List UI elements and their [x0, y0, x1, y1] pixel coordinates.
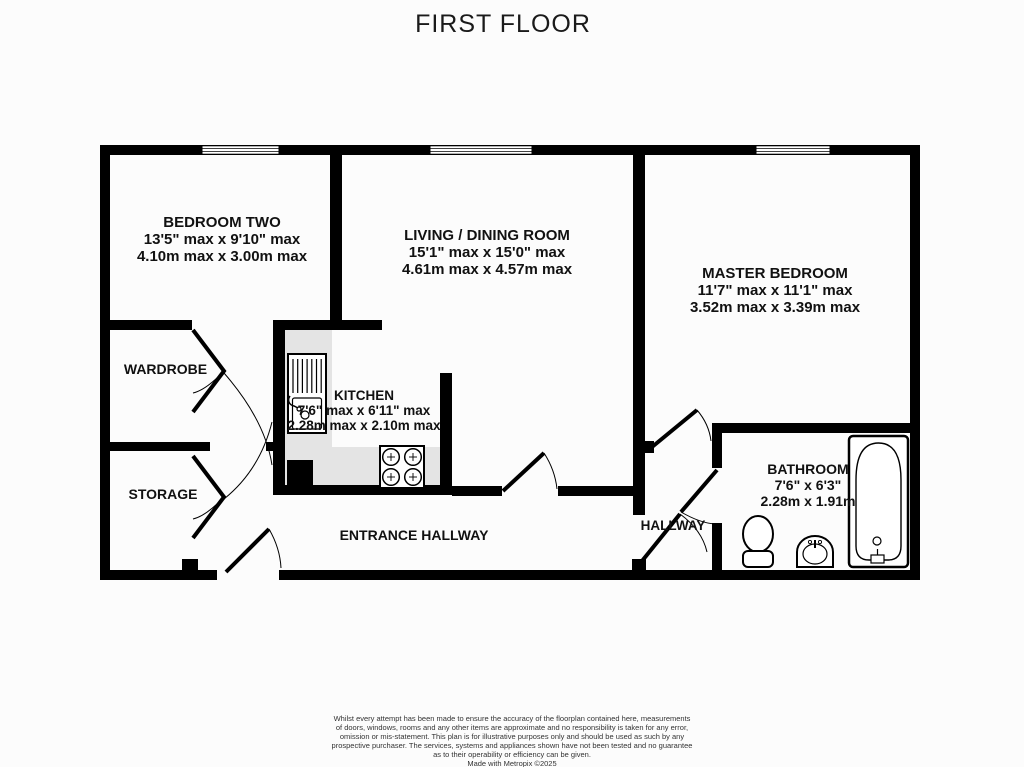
hob: [380, 446, 424, 488]
window-master-bedroom: [756, 146, 830, 154]
living-room-door: [503, 453, 557, 491]
toilet: [743, 516, 773, 567]
wardrobe-name: WARDROBE: [118, 361, 213, 377]
credit-line: Made with Metropix ©2025: [0, 759, 1024, 767]
storage-label-block: STORAGE: [118, 486, 208, 502]
bedroom-two-dims-imperial: 13'5" max x 9'10" max: [110, 231, 334, 248]
master-bedroom-name: MASTER BEDROOM: [655, 265, 895, 282]
living-dining-label-block: LIVING / DINING ROOM 15'1" max x 15'0" m…: [352, 227, 622, 278]
kitchen-name: KITCHEN: [283, 388, 445, 403]
bathroom-dims-imperial: 7'6" x 6'3": [727, 477, 889, 493]
entrance-hallway-name: ENTRANCE HALLWAY: [314, 527, 514, 543]
kitchen-dims-metric: 2.28m max x 2.10m max: [283, 418, 445, 433]
living-dining-dims-metric: 4.61m max x 4.57m max: [352, 261, 622, 278]
disclaimer-line: Whilst every attempt has been made to en…: [0, 714, 1024, 723]
bedroom-two-dims-metric: 4.10m max x 3.00m max: [110, 248, 334, 265]
hallway-name: HALLWAY: [627, 518, 719, 533]
bathroom-name: BATHROOM: [727, 461, 889, 477]
bedroom-two-label-block: BEDROOM TWO 13'5" max x 9'10" max 4.10m …: [110, 214, 334, 265]
kitchen-dims-imperial: 7'6" max x 6'11" max: [283, 403, 445, 418]
master-bedroom-door: [652, 410, 711, 447]
disclaimer-line: prospective purchaser. The services, sys…: [0, 741, 1024, 750]
outer-walls: [100, 145, 920, 580]
living-dining-name: LIVING / DINING ROOM: [352, 227, 622, 244]
bathroom-dims-metric: 2.28m x 1.91m: [727, 493, 889, 509]
wardrobe-label-block: WARDROBE: [118, 361, 213, 377]
storage-door: [193, 422, 272, 538]
kitchen-label-block: KITCHEN 7'6" max x 6'11" max 2.28m max x…: [283, 388, 445, 433]
entrance-door: [226, 529, 281, 572]
entrance-hallway-label-block: ENTRANCE HALLWAY: [314, 527, 514, 543]
living-dining-dims-imperial: 15'1" max x 15'0" max: [352, 244, 622, 261]
disclaimer-line: of doors, windows, rooms and any other i…: [0, 723, 1024, 732]
master-bedroom-dims-metric: 3.52m max x 3.39m max: [655, 299, 895, 316]
window-living-room: [430, 146, 532, 154]
bathroom-label-block: BATHROOM 7'6" x 6'3" 2.28m x 1.91m: [727, 461, 889, 509]
floorplan-page: FIRST FLOOR: [0, 0, 1024, 767]
bathroom-door: [681, 470, 717, 524]
bedroom-two-name: BEDROOM TWO: [110, 214, 334, 231]
basin: [797, 536, 833, 567]
disclaimer: Whilst every attempt has been made to en…: [0, 714, 1024, 767]
window-bedroom-two: [202, 146, 279, 154]
disclaimer-line: omission or mis-statement. This plan is …: [0, 732, 1024, 741]
master-bedroom-label-block: MASTER BEDROOM 11'7" max x 11'1" max 3.5…: [655, 265, 895, 316]
master-bedroom-dims-imperial: 11'7" max x 11'1" max: [655, 282, 895, 299]
hallway-label-block: HALLWAY: [627, 518, 719, 533]
floorplan-drawing: [0, 0, 1024, 767]
disclaimer-line: as to their operability or efficiency ca…: [0, 750, 1024, 759]
storage-name: STORAGE: [118, 486, 208, 502]
